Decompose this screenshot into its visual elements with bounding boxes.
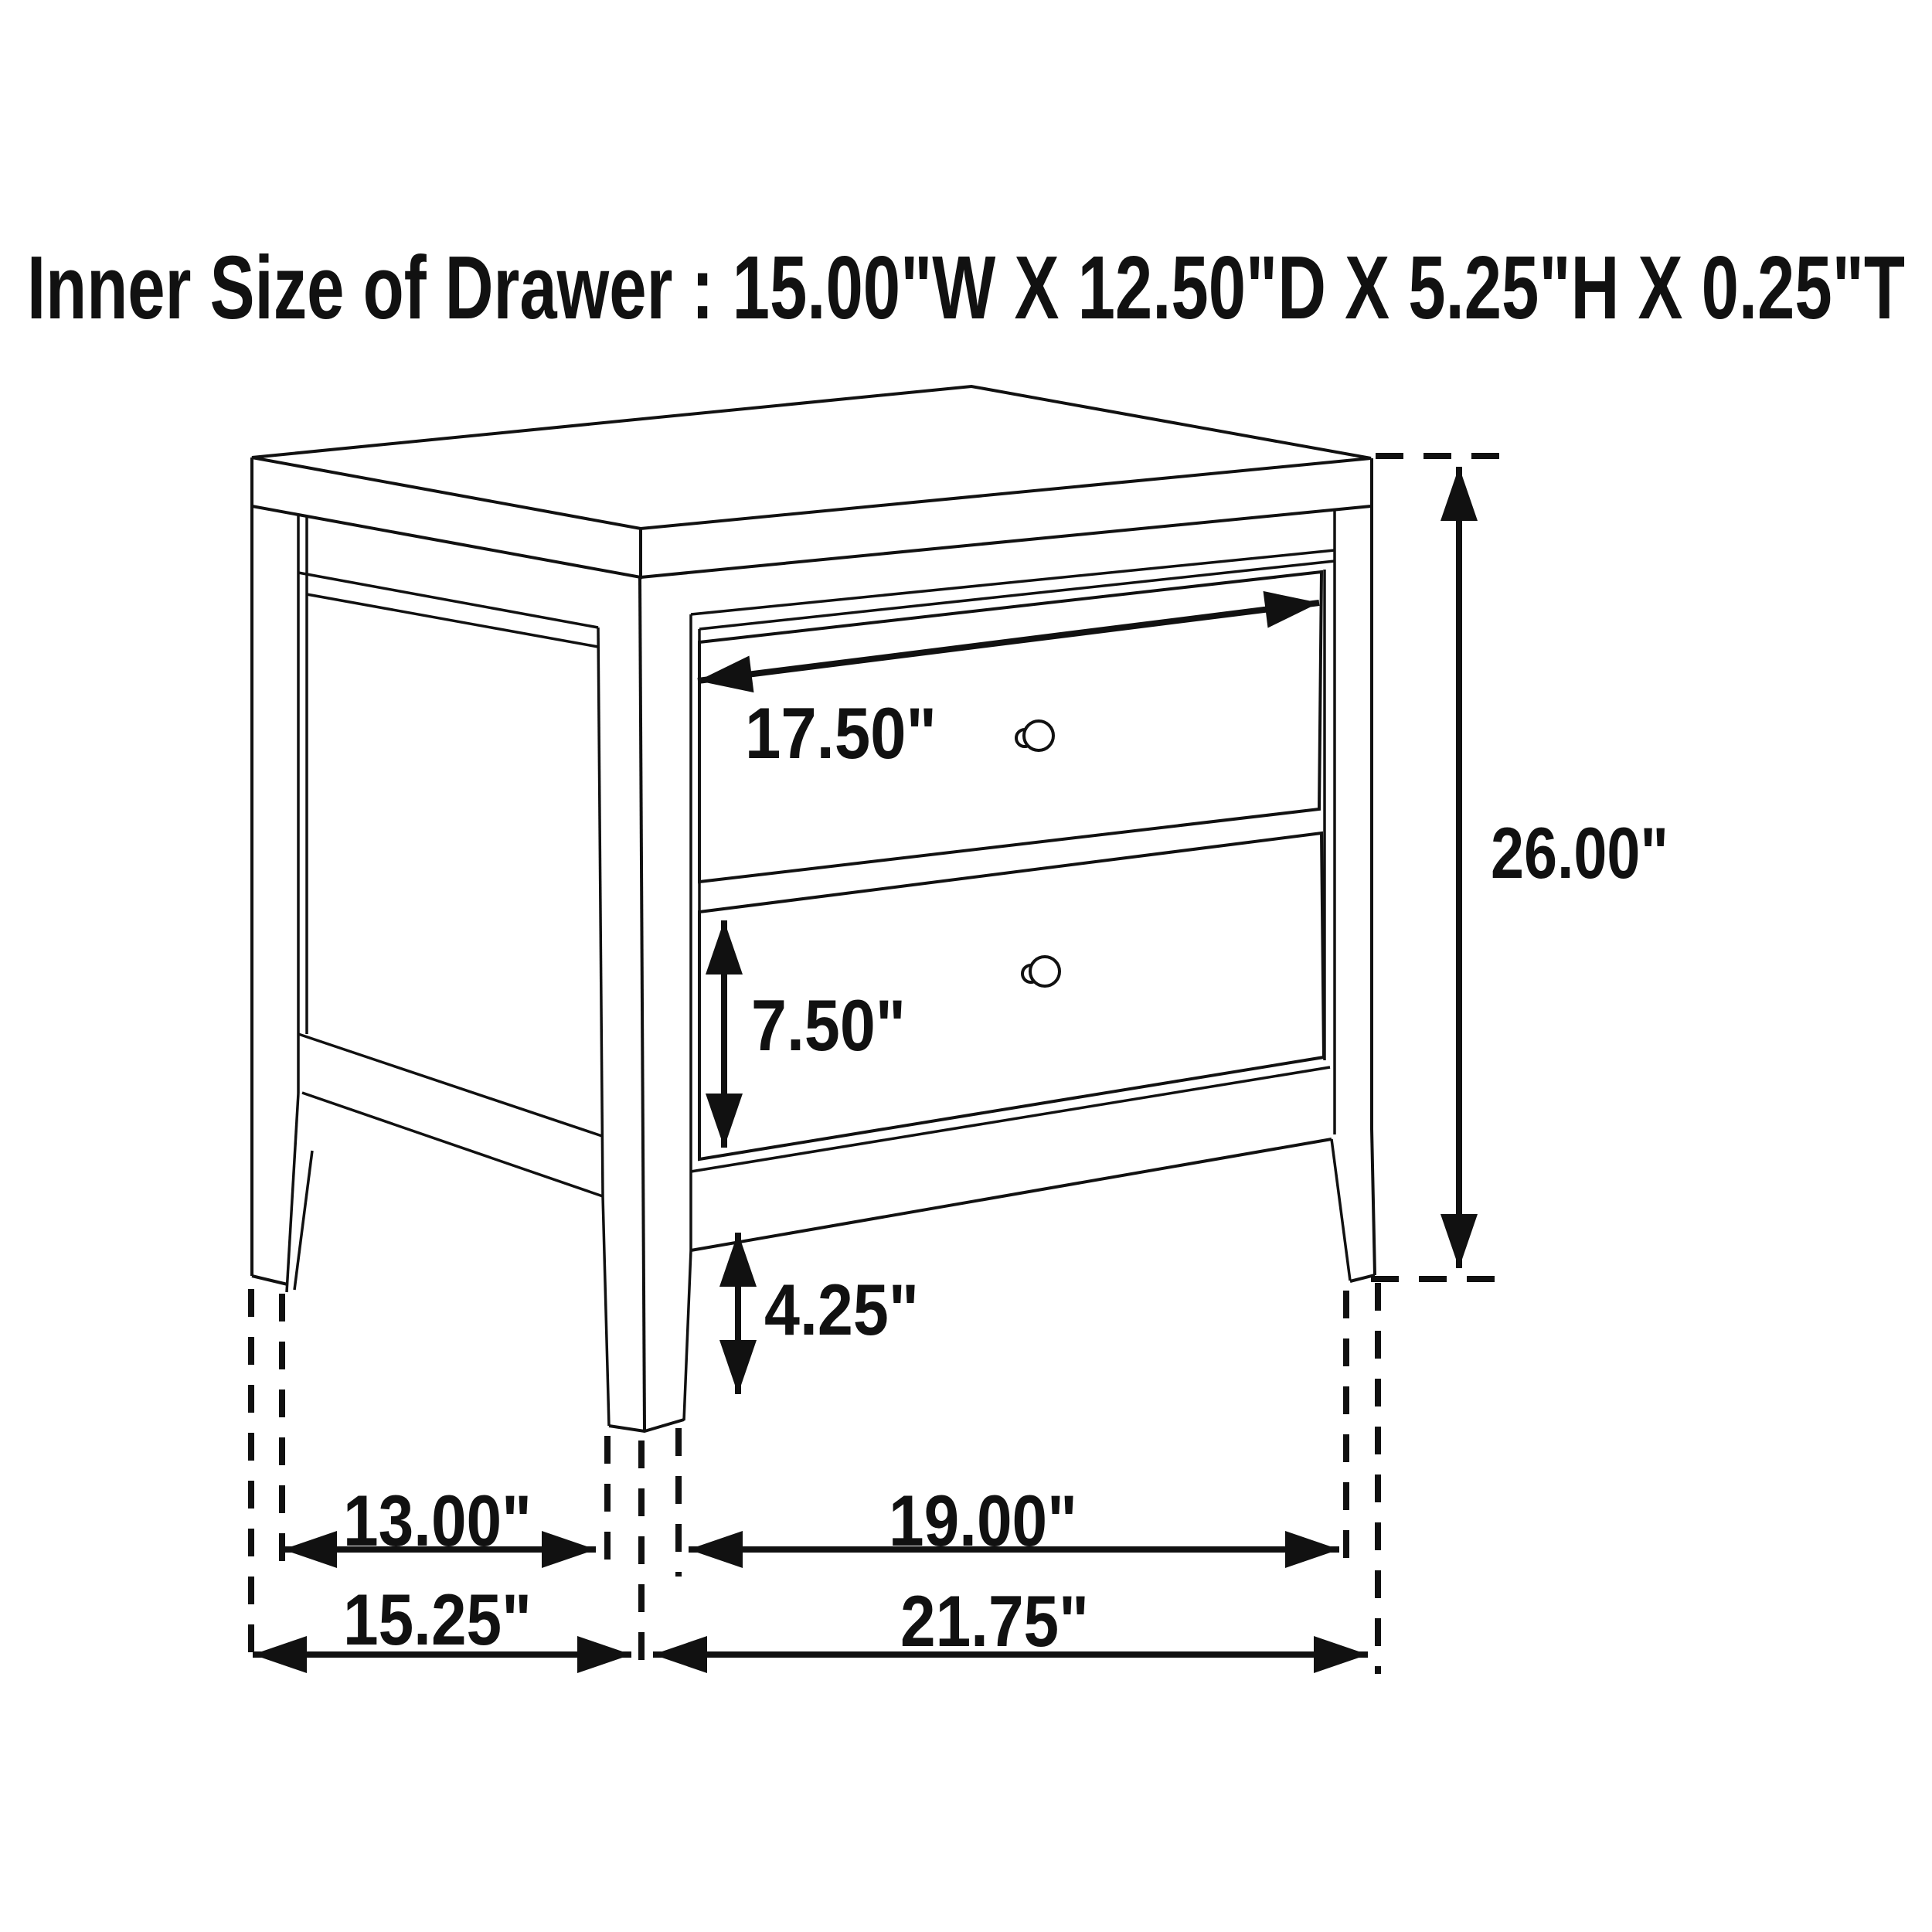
front-top-rail-edge-b — [699, 561, 1335, 629]
page-title: Inner Size of Drawer : 15.00"W X 12.50"D… — [27, 237, 1905, 338]
dim-side-depth-overall: 15.25" — [253, 1579, 631, 1660]
dim-bottom-drawer-height: 7.50" — [724, 920, 906, 1148]
dim-drawer-face-width: 17.50" — [698, 603, 1319, 774]
dim-front-leg-spacing-inner: 19.00" — [689, 1480, 1339, 1561]
dim-arrow-17-50 — [698, 603, 1319, 681]
back-left-leg — [252, 1094, 312, 1292]
dim-label-4-25: 4.25" — [764, 1269, 919, 1350]
front-left-leg-foot — [609, 1420, 684, 1431]
drawer-top-knob — [1024, 721, 1053, 750]
dim-side-leg-spacing-inner: 13.00" — [283, 1480, 596, 1561]
front-right-leg-inner-edge — [1332, 1139, 1350, 1281]
side-apron-bottom-edge — [302, 1093, 603, 1196]
nightstand-dimension-diagram: 17.50" 26.00" 7.50" 4.25" 13.00" 19.00" — [0, 0, 1932, 1932]
front-left-leg — [603, 1196, 691, 1431]
tabletop — [252, 386, 1371, 577]
back-left-leg-taper — [287, 1094, 298, 1292]
left-side-panel — [252, 506, 645, 1430]
dim-leg-height: 4.25" — [738, 1233, 919, 1394]
front-left-leg-back-edge — [603, 1196, 609, 1426]
dim-label-19-00: 19.00" — [889, 1480, 1077, 1561]
dim-label-26-00: 26.00" — [1491, 812, 1668, 893]
front-right-leg — [1332, 1129, 1375, 1281]
diagram-canvas: 17.50" 26.00" 7.50" 4.25" 13.00" 19.00" — [0, 0, 1932, 1932]
front-post-corner-edge — [640, 578, 645, 1430]
dim-label-15-25: 15.25" — [343, 1579, 532, 1660]
dim-label-21-75: 21.75" — [900, 1580, 1089, 1662]
back-left-leg-foot — [252, 1276, 287, 1284]
tabletop-top-face — [252, 386, 1371, 529]
dim-overall-height: 26.00" — [1459, 467, 1668, 1268]
back-left-leg-inner-face — [294, 1151, 312, 1290]
side-panel-bottom-edge — [298, 1034, 602, 1136]
dim-label-13-00: 13.00" — [343, 1480, 532, 1561]
front-left-leg-inner-edge — [684, 1250, 691, 1420]
dimension-annotations: 17.50" 26.00" 7.50" 4.25" 13.00" 19.00" — [251, 456, 1668, 1674]
dim-label-17-50: 17.50" — [745, 692, 937, 774]
dim-label-7-50: 7.50" — [751, 985, 906, 1066]
dim-front-width-overall: 21.75" — [653, 1580, 1368, 1662]
front-right-leg-outer-edge — [1372, 1129, 1375, 1275]
front-post-back-edge — [598, 628, 603, 1196]
drawer-bottom-knob — [1030, 957, 1060, 986]
